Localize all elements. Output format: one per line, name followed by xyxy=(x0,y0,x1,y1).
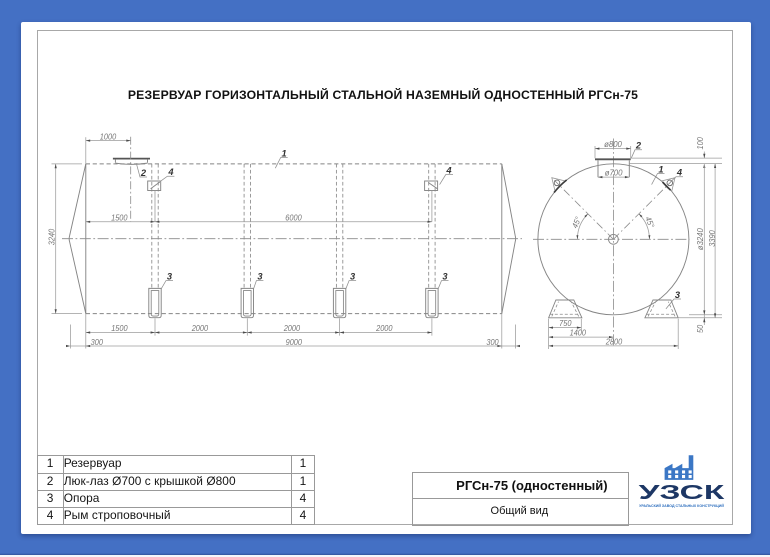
svg-text:УРАЛЬСКИЙ ЗАВОД СТАЛЬНЫХ КОНСТ: УРАЛЬСКИЙ ЗАВОД СТАЛЬНЫХ КОНСТРУКЦИЙ xyxy=(639,504,724,508)
svg-text:УЗСК: УЗСК xyxy=(639,482,726,504)
